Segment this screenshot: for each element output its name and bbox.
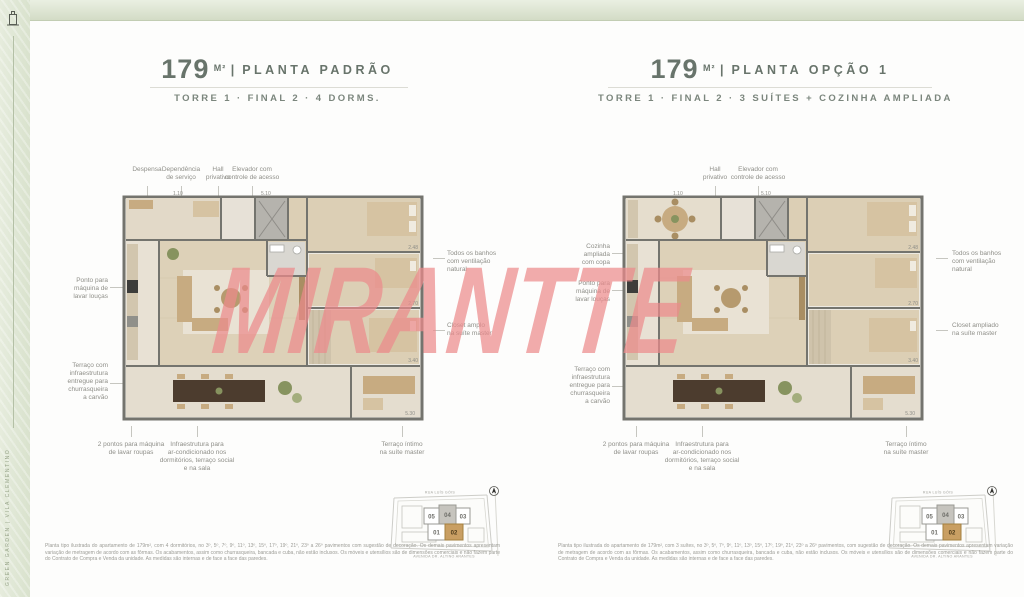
disclaimer-text: Planta tipo ilustrada do apartamento de … (558, 543, 1013, 563)
area-value: 179 (161, 54, 209, 84)
page-title: 179 M² | PLANTA PADRÃO (115, 54, 440, 85)
callout-lavar-roupas: 2 pontos para máquina de lavar roupas (98, 441, 165, 457)
leader-line (433, 258, 445, 259)
svg-text:5.30: 5.30 (905, 411, 915, 417)
svg-text:5.10: 5.10 (261, 191, 271, 197)
svg-text:05: 05 (926, 515, 933, 521)
title-sep: | (231, 63, 238, 77)
callout-closet: Closet amplo na suíte master (447, 322, 492, 338)
left-spine-strip: GREEN GARDEN | VILA CLEMENTINO (0, 0, 30, 597)
svg-text:04: 04 (942, 513, 949, 519)
callout-closet-ampliado: Closet ampliado na suíte master (952, 322, 999, 338)
svg-text:2.48: 2.48 (408, 245, 418, 251)
leader-line (936, 330, 948, 331)
callout-cozinha-ampliada: Cozinha ampliada com copa (550, 243, 610, 267)
top-accent-strip (28, 0, 1024, 20)
callout-lavar-roupas: 2 pontos para máquina de lavar roupas (603, 441, 670, 457)
svg-text:05: 05 (428, 515, 435, 521)
callout-churrasqueira: Terraço com infraestrutura entregue para… (550, 366, 610, 406)
callout-lavar-loucas: Ponto para máquina de lavar louças (48, 277, 108, 301)
plan-subtitle: TORRE 1 · FINAL 2 · 4 DORMS. (115, 93, 440, 104)
callout-terraco-intimo: Terraço íntimo na suíte master (884, 441, 929, 457)
svg-text:5.30: 5.30 (405, 411, 415, 417)
svg-text:03: 03 (958, 515, 965, 521)
callout-churrasqueira: Terraço com infraestrutura entregue para… (48, 362, 108, 402)
svg-text:01: 01 (931, 531, 938, 537)
page-title: 179 M² | PLANTA OPÇÃO 1 (598, 54, 942, 85)
plan-subtitle: TORRE 1 · FINAL 2 · 3 SUÍTES + COZINHA A… (598, 93, 942, 104)
callout-banhos: Todos os banhos com ventilação natural (447, 250, 496, 274)
svg-text:02: 02 (949, 531, 956, 537)
svg-text:5.10: 5.10 (761, 191, 771, 197)
title-rule (608, 87, 932, 88)
disclaimer-text: Planta tipo ilustrada do apartamento de … (45, 543, 500, 563)
floorplan-padrao: 1.10 5.10 2.48 2.70 3.40 5.30 (115, 188, 431, 428)
svg-text:2.70: 2.70 (908, 301, 918, 307)
compass-icon (490, 487, 499, 496)
svg-text:02: 02 (451, 531, 458, 537)
plan-name: PLANTA PADRÃO (242, 63, 394, 77)
area-unit: M² (703, 63, 716, 73)
svg-text:1.10: 1.10 (173, 191, 183, 197)
spine-divider (13, 36, 14, 428)
callout-elevador: Elevador com controle de acesso (225, 166, 280, 182)
svg-text:2.70: 2.70 (408, 301, 418, 307)
svg-text:3.40: 3.40 (408, 358, 418, 364)
svg-text:RUA LUÍS GÓIS: RUA LUÍS GÓIS (923, 490, 954, 495)
callout-hall: Hall privativo (703, 166, 727, 182)
svg-text:2.48: 2.48 (908, 245, 918, 251)
svg-text:3.40: 3.40 (908, 358, 918, 364)
callout-ar-condicionado: Infraestrutura para ar-condicionado nos … (665, 441, 739, 473)
callout-terraco-intimo: Terraço íntimo na suíte master (380, 441, 425, 457)
callout-ar-condicionado: Infraestrutura para ar-condicionado nos … (160, 441, 234, 473)
callout-banhos: Todos os banhos com ventilação natural (952, 250, 1001, 274)
compass-icon (988, 487, 997, 496)
leader-line (936, 258, 948, 259)
floorplan-opcao-1: 1.10 5.10 2.48 2.70 3.40 5.30 (615, 188, 931, 428)
title-sep: | (720, 63, 727, 77)
svg-text:01: 01 (433, 531, 440, 537)
svg-text:03: 03 (460, 515, 467, 521)
callout-despensa: Despensa (132, 166, 161, 174)
callout-elevador: Elevador com controle de acesso (731, 166, 786, 182)
spine-project-name: GREEN GARDEN | VILA CLEMENTINO (5, 436, 23, 586)
plan-name: PLANTA OPÇÃO 1 (731, 63, 889, 77)
area-value: 179 (651, 54, 699, 84)
area-unit: M² (214, 63, 227, 73)
title-rule (150, 87, 408, 88)
svg-text:04: 04 (444, 513, 451, 519)
leader-line (433, 330, 445, 331)
svg-text:RUA LUÍS GÓIS: RUA LUÍS GÓIS (425, 490, 456, 495)
svg-text:1.10: 1.10 (673, 191, 683, 197)
callout-dependencia: Dependência de serviço (162, 166, 200, 182)
building-icon (6, 9, 20, 26)
callout-lavar-loucas: Ponto para máquina de lavar louças (550, 280, 610, 304)
